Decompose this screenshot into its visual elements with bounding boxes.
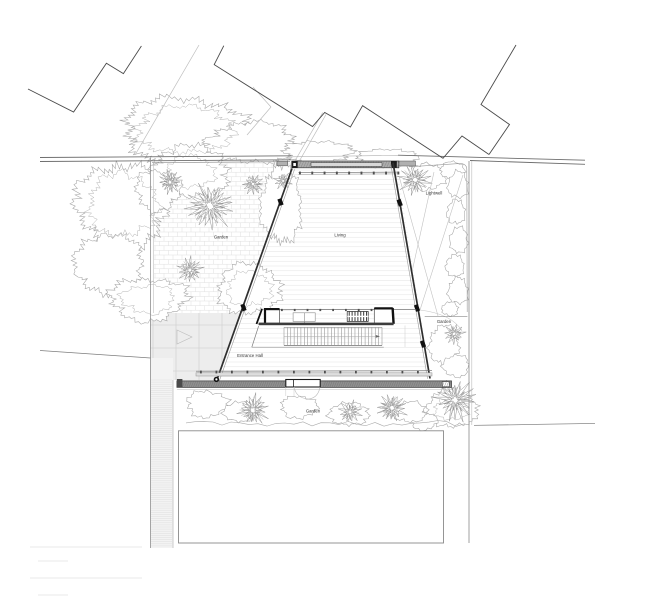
svg-text:Garden: Garden <box>437 319 452 324</box>
svg-text:Lightwell: Lightwell <box>426 191 443 196</box>
svg-text:Living: Living <box>334 233 346 238</box>
svg-text:Garden: Garden <box>214 235 229 240</box>
svg-text:Entrance Hall: Entrance Hall <box>237 353 263 358</box>
svg-text:Garden: Garden <box>306 409 321 414</box>
